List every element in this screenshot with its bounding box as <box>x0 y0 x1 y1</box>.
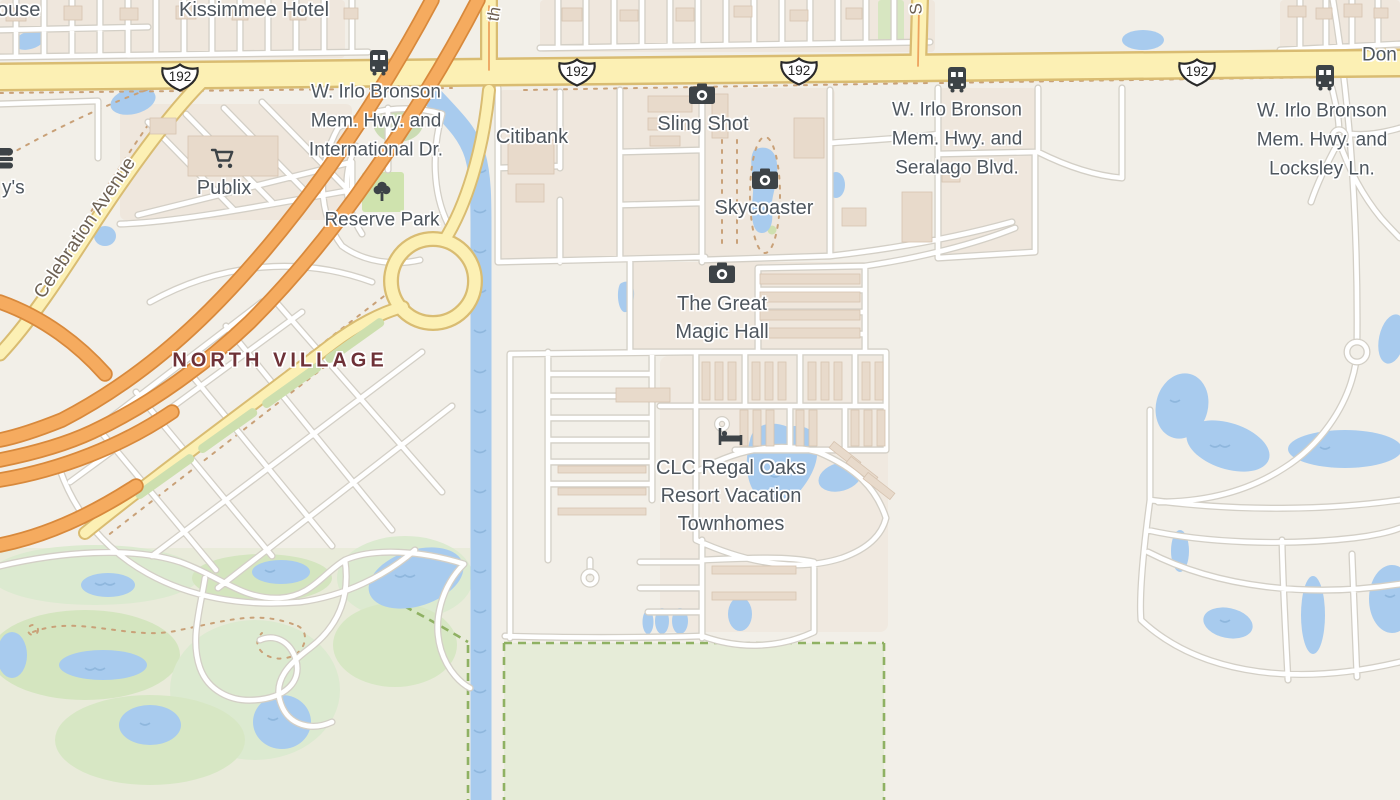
route-shield-number: 192 <box>566 64 589 79</box>
attraction-camera-icon <box>752 169 778 190</box>
label-citibank: Citibank <box>496 123 568 151</box>
label-busstop-international: W. Irlo Bronson Mem. Hwy. and Internatio… <box>309 78 443 165</box>
label-clc-regal-oaks: CLC Regal Oaks Resort Vacation Townhomes <box>656 454 806 538</box>
label-north-village: NORTH VILLAGE <box>172 347 387 376</box>
label-kissimmee-hotel: Kissimmee Hotel <box>179 0 329 24</box>
route-shield-number: 192 <box>1186 64 1209 79</box>
label-partial-house: ouse <box>0 0 40 24</box>
fast-food-burger-icon <box>0 148 13 169</box>
label-great-magic-hall: The Great Magic Hall <box>675 290 768 346</box>
route-shield-number: 192 <box>169 69 192 84</box>
label-publix: Publix <box>197 174 251 202</box>
route-shield-number: 192 <box>788 63 811 78</box>
attraction-camera-icon <box>689 84 715 105</box>
label-busstop-seralago: W. Irlo Bronson Mem. Hwy. and Seralago B… <box>892 96 1023 183</box>
label-reserve-park: Reserve Park <box>324 206 439 235</box>
label-partial-don: Don <box>1362 41 1397 70</box>
label-sling-shot: Sling Shot <box>657 110 748 138</box>
label-busstop-locksley: W. Irlo Bronson Mem. Hwy. and Locksley L… <box>1257 97 1388 184</box>
bus-stop-icon <box>370 50 388 76</box>
attraction-camera-icon <box>709 263 735 284</box>
map-canvas[interactable]: 192 192 192 192 ouse Kissimmee Hotel Don… <box>0 0 1400 800</box>
label-partial-fastfood: y's <box>2 174 25 203</box>
bus-stop-icon <box>1316 65 1334 91</box>
label-skycoaster: Skycoaster <box>715 194 814 222</box>
bus-stop-icon <box>948 67 966 93</box>
